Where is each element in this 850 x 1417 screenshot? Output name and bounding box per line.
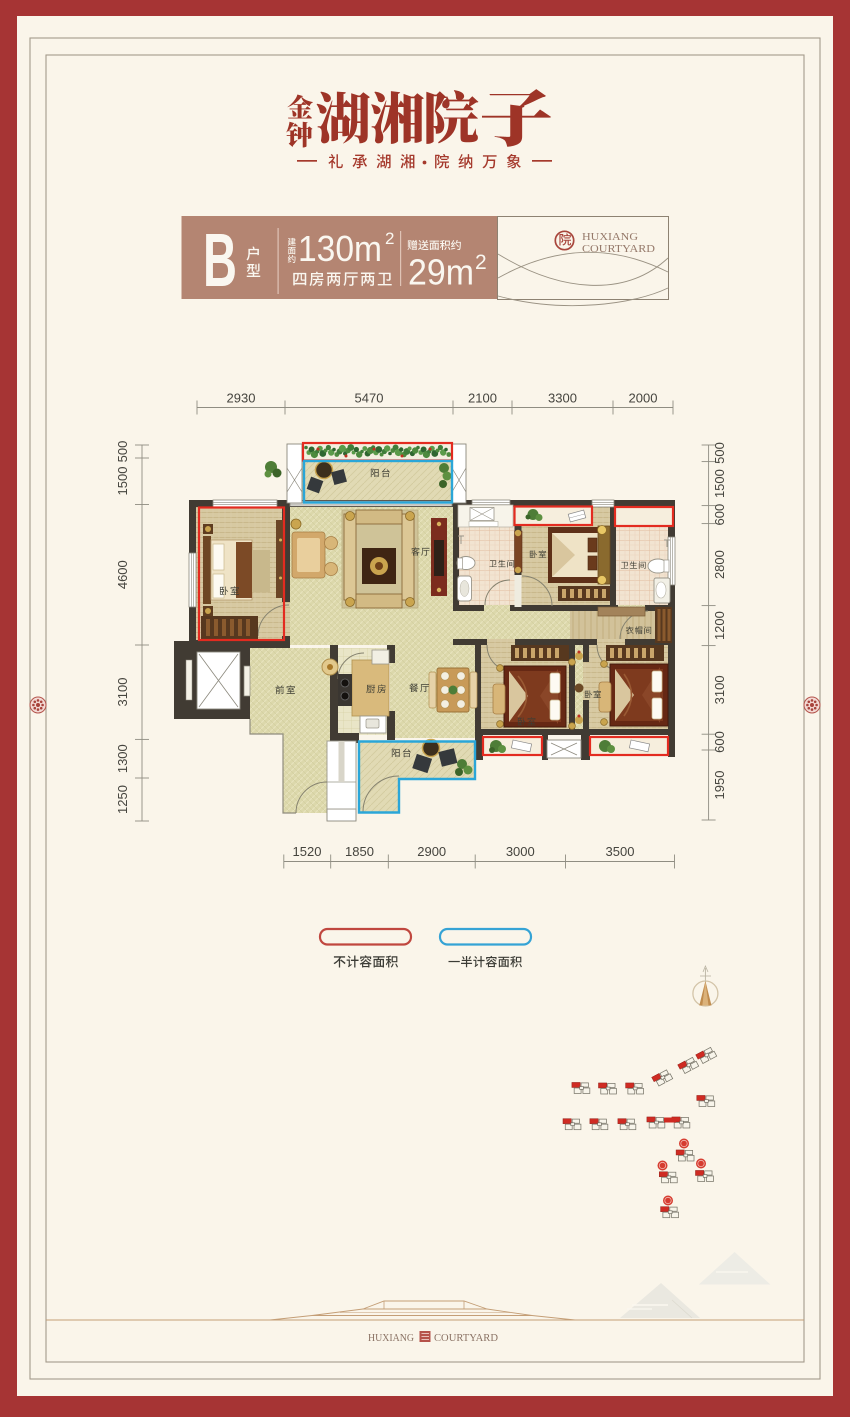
svg-text:29m: 29m (408, 252, 474, 293)
svg-text:HUXIANG: HUXIANG (368, 1333, 414, 1344)
svg-text:1850: 1850 (345, 844, 374, 859)
svg-text:5470: 5470 (355, 391, 384, 406)
svg-text:1500: 1500 (712, 469, 727, 498)
svg-text:1300: 1300 (115, 744, 130, 773)
svg-text:500: 500 (115, 441, 130, 463)
svg-text:3500: 3500 (606, 844, 635, 859)
svg-text:2000: 2000 (629, 391, 658, 406)
svg-text:3100: 3100 (712, 675, 727, 704)
svg-text:1520: 1520 (293, 844, 322, 859)
svg-text:600: 600 (712, 731, 727, 753)
svg-text:2: 2 (385, 229, 394, 248)
svg-text:3300: 3300 (548, 391, 577, 406)
svg-text:1200: 1200 (712, 611, 727, 640)
svg-text:3100: 3100 (115, 678, 130, 707)
svg-text:B: B (203, 218, 237, 302)
svg-text:1250: 1250 (115, 785, 130, 814)
svg-text:2900: 2900 (417, 844, 446, 859)
svg-text:1950: 1950 (712, 771, 727, 800)
svg-text:HUXIANG: HUXIANG (582, 231, 638, 243)
svg-text:130m: 130m (298, 228, 382, 269)
svg-text:600: 600 (712, 504, 727, 526)
svg-text:500: 500 (712, 442, 727, 464)
svg-text:1500: 1500 (115, 467, 130, 496)
svg-text:2930: 2930 (227, 391, 256, 406)
svg-text:3000: 3000 (506, 844, 535, 859)
svg-text:4600: 4600 (115, 560, 130, 589)
svg-text:2: 2 (475, 251, 487, 274)
svg-text:2100: 2100 (468, 391, 497, 406)
svg-text:COURTYARD: COURTYARD (582, 243, 655, 255)
svg-text:COURTYARD: COURTYARD (434, 1333, 498, 1344)
svg-text:2800: 2800 (712, 550, 727, 579)
